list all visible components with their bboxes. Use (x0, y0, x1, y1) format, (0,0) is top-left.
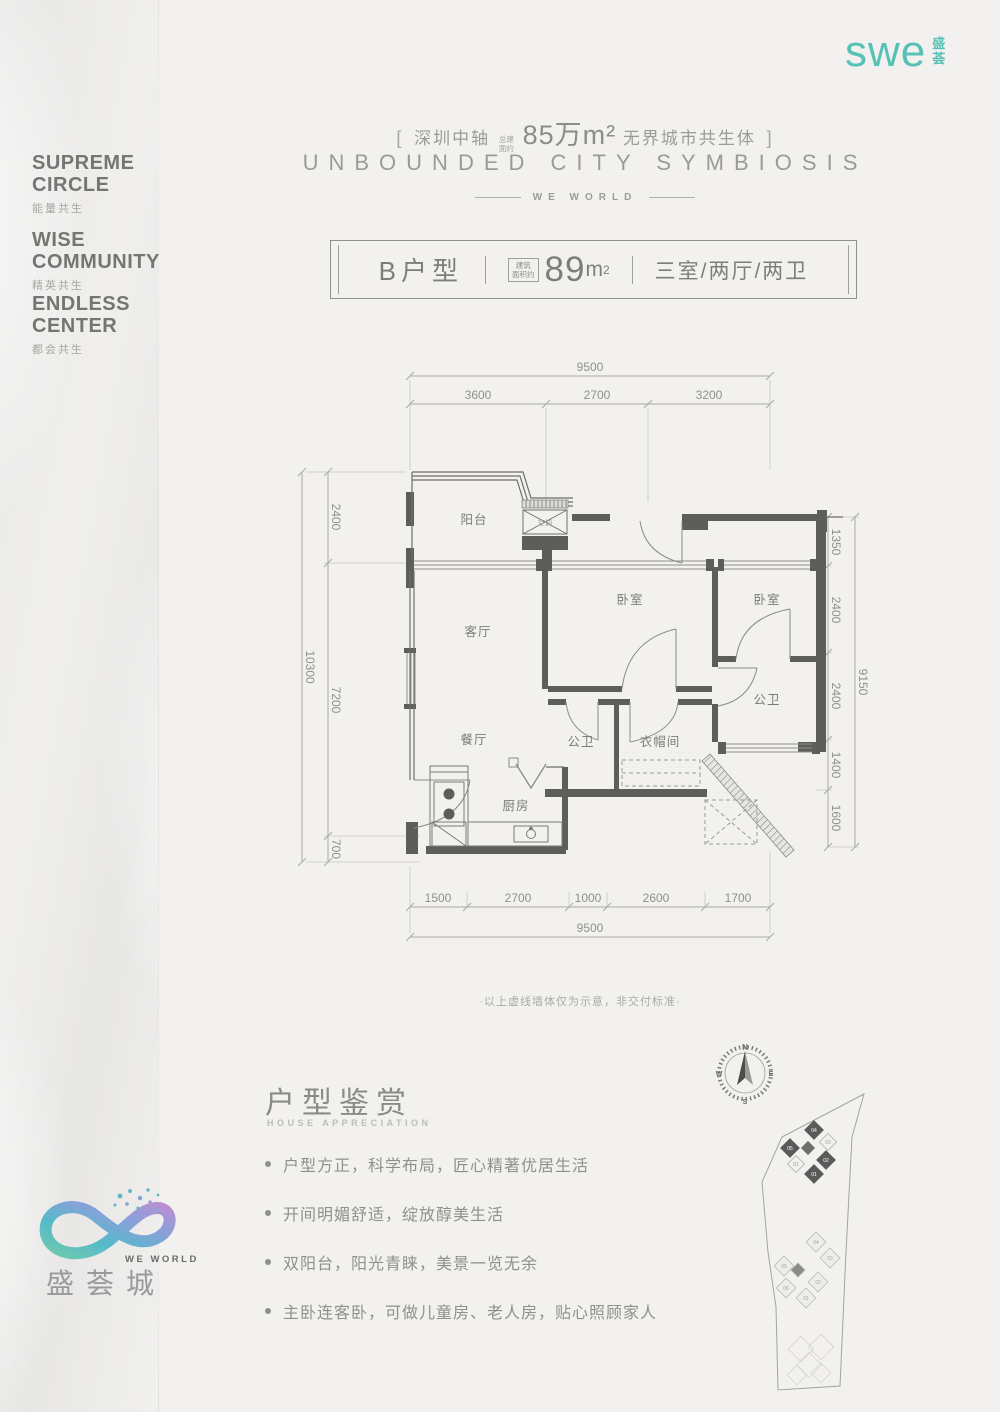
ac-unit: 空调 (522, 500, 568, 534)
room-cloakroom: 衣帽间 (640, 734, 681, 749)
side-label-line2: CIRCLE (32, 174, 172, 196)
ac-label: 空调 (538, 518, 552, 527)
kitchen-fixtures (430, 766, 562, 846)
brand-logo: swe 盛 荟 (845, 30, 945, 74)
bldg-label: 03 (827, 1256, 833, 1262)
bullet-item: 主卧连客卧，可做儿童房、老人房，贴心照顾家人 (265, 1299, 695, 1323)
siteplan-buildings-mid: 04 03 05 06 02 01 (774, 1232, 840, 1308)
dashed-walls (622, 760, 757, 844)
tagline-bracket-right: ] (767, 128, 774, 148)
unitbar-endline-right (848, 245, 849, 294)
header-tagline: [ 深圳中轴 总建 面约 85万m² 无界城市共生体 ] (170, 113, 1000, 153)
subtitle-dash-left (475, 197, 521, 198)
appreciation-bullets: 户型方正，科学布局，匠心精著优居生活 开间明媚舒适，绽放醇美生活 双阳台，阳光青… (265, 1152, 695, 1348)
brand-logo-cn-2: 荟 (932, 52, 945, 67)
dim-right-4: 1400 (829, 752, 843, 779)
dim-top-3: 3200 (696, 388, 723, 402)
compass-w: W (716, 1071, 723, 1078)
siteplan-buildings-faint (787, 1334, 834, 1385)
side-label-supreme-circle: SUPREME CIRCLE 能量共生 (32, 152, 172, 216)
floorplan-drawing: 9500 3600 2700 3200 10300 2400 7200 700 … (280, 352, 880, 977)
appreciation-title: 户型鉴赏 (265, 1078, 413, 1122)
plan-note: ·以上虚线墙体仅为示意，非交付标准· (280, 993, 880, 1009)
side-label-line1: SUPREME (32, 152, 172, 174)
bldg-label: 01 (803, 1296, 809, 1302)
bullet-item: 双阳台，阳光青睐，美景一览无余 (265, 1250, 695, 1274)
dim-bottom-4: 2600 (643, 891, 670, 905)
swirl-path (46, 1207, 170, 1253)
compass-s: S (743, 1099, 748, 1106)
side-label-en: SUPREME CIRCLE (32, 152, 172, 196)
side-label-en: ENDLESS CENTER (32, 293, 172, 337)
bldg-label: 02 (823, 1158, 829, 1164)
dim-right-3: 2400 (829, 683, 843, 710)
room-bedroom2: 卧室 (753, 592, 780, 607)
windows (407, 561, 812, 752)
bldg-label: 01 (793, 1162, 799, 1168)
room-dining: 餐厅 (460, 732, 487, 747)
side-label-cn: 能量共生 (32, 200, 172, 216)
dim-bottom-5: 1700 (725, 891, 752, 905)
room-bath-center: 公卫 (567, 735, 594, 749)
walls-thick (404, 492, 827, 854)
unit-area-sup: 2 (603, 263, 610, 277)
dim-bottom-2: 2700 (505, 891, 532, 905)
diagonal-hatched-wall (702, 754, 794, 857)
room-bedroom1: 卧室 (616, 592, 643, 607)
bldg-label: 02 (815, 1280, 821, 1286)
compass-e: E (769, 1071, 774, 1078)
side-label-line2: CENTER (32, 315, 172, 337)
tagline-bracket-left: [ (396, 128, 403, 148)
tagline-suffix: 无界城市共生体 (623, 129, 756, 148)
bullet-text: 户型方正，科学布局，匠心精著优居生活 (283, 1152, 589, 1176)
dim-left-3: 700 (329, 839, 343, 859)
tagline-area-highlight: 85万m² (523, 120, 617, 150)
bldg-label: 04 (813, 1240, 819, 1246)
unit-area-number: 89 (545, 250, 586, 290)
compass-n: N (742, 1043, 748, 1052)
dim-left-1: 2400 (329, 504, 343, 531)
dim-bottom-3: 1000 (575, 891, 602, 905)
bldg-label: 05 (781, 1264, 787, 1270)
unit-area-tag-2: 面积约 (512, 270, 535, 279)
bullet-text: 主卧连客卧，可做儿童房、老人房，贴心照顾家人 (283, 1299, 657, 1323)
room-labels: 阳台 客厅 餐厅 厨房 卧室 卧室 公卫 公卫 衣帽间 (460, 512, 780, 813)
bldg-label: 06 (783, 1286, 789, 1292)
bldg-label: 03 (825, 1140, 831, 1146)
bullet-text: 双阳台，阳光青睐，美景一览无余 (283, 1250, 538, 1274)
subtitle-dash-right (649, 197, 695, 198)
footer-logo-cn: 盛荟城 (46, 1262, 166, 1302)
bldg-label: 01 (811, 1172, 817, 1178)
unitbar-divider (632, 256, 633, 284)
unit-rooms: 三室/两厅/两卫 (655, 255, 809, 285)
appreciation-subtitle: HOUSE APPRECIATION (267, 1118, 432, 1128)
bldg-label: 04 (811, 1128, 817, 1134)
dim-bottom-total: 9500 (577, 921, 604, 935)
dim-right-5: 1600 (829, 805, 843, 832)
dim-left-total: 10300 (303, 650, 317, 684)
dim-right-total: 9150 (856, 669, 870, 696)
brand-logo-text: swe (845, 30, 926, 74)
dim-right-1: 1350 (829, 529, 843, 556)
brand-logo-cn-1: 盛 (932, 37, 945, 52)
dim-top-1: 3600 (465, 388, 492, 402)
room-balcony: 阳台 (460, 512, 487, 527)
brand-logo-cn: 盛 荟 (932, 37, 945, 67)
side-label-line2: COMMUNITY (32, 251, 172, 273)
tagline-prefix: 深圳中轴 (414, 129, 490, 148)
side-label-wise-community: WISE COMMUNITY 精英共生 (32, 229, 172, 293)
unit-area: 建筑 面积约 89 m 2 (508, 250, 610, 290)
poster-page: swe 盛 荟 [ 深圳中轴 总建 面约 85万m² 无界城市共生体 ] UNB… (0, 0, 1000, 1412)
dim-right-2: 2400 (829, 597, 843, 624)
header-title-en: UNBOUNDED CITY SYMBIOSIS (170, 150, 1000, 176)
unitbar-divider (485, 256, 486, 284)
side-label-endless-center: ENDLESS CENTER 都会共生 (32, 293, 172, 357)
side-label-cn: 都会共生 (32, 341, 172, 357)
dim-bottom-1: 1500 (425, 891, 452, 905)
header-subtitle: WE WORLD (170, 192, 1000, 203)
dim-top-2: 2700 (584, 388, 611, 402)
dim-lines (298, 372, 859, 941)
unit-info-bar: B户型 建筑 面积约 89 m 2 三室/两厅/两卫 (330, 240, 857, 299)
dim-top-total: 9500 (577, 360, 604, 374)
subtitle-text: WE WORLD (533, 192, 638, 203)
unit-area-tag: 建筑 面积约 (508, 258, 539, 282)
side-label-line1: ENDLESS (32, 293, 172, 315)
bullet-dot (265, 1259, 271, 1265)
side-label-en: WISE COMMUNITY (32, 229, 172, 273)
unit-area-unit: m (585, 258, 603, 282)
room-kitchen: 厨房 (502, 798, 529, 813)
bullet-dot (265, 1308, 271, 1314)
bullet-item: 开间明媚舒适，绽放醇美生活 (265, 1201, 695, 1225)
bullet-dot (265, 1161, 271, 1167)
room-bath-right: 公卫 (753, 693, 780, 707)
unit-area-tag-1: 建筑 (512, 261, 535, 270)
room-living: 客厅 (464, 624, 491, 639)
side-label-cn: 精英共生 (32, 277, 172, 293)
unitbar-endline-left (338, 245, 339, 294)
bullet-item: 户型方正，科学布局，匠心精著优居生活 (265, 1152, 695, 1176)
dim-left-2: 7200 (329, 687, 343, 714)
siteplan-buildings-dark: 04 05 02 01 03 01 (780, 1120, 836, 1184)
bullet-dot (265, 1210, 271, 1216)
unit-name: B户型 (379, 251, 463, 288)
side-label-line1: WISE (32, 229, 172, 251)
dim-guides (306, 380, 859, 933)
siteplan-map: 04 05 02 01 03 01 04 03 05 06 02 01 (752, 1082, 872, 1402)
bullet-text: 开间明媚舒适，绽放醇美生活 (283, 1201, 504, 1225)
bldg-label: 05 (787, 1146, 793, 1152)
